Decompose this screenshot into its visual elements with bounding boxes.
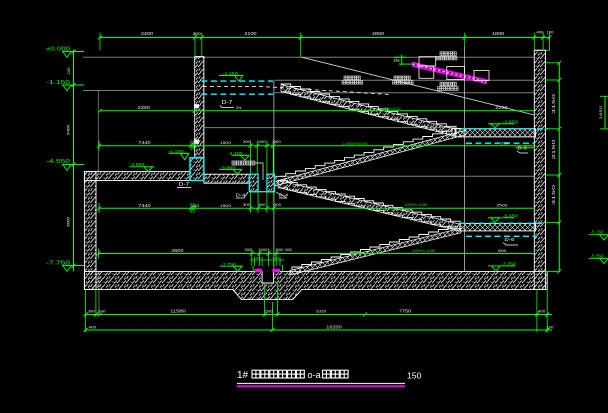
svg-text:300: 300	[276, 248, 283, 252]
svg-text:2300: 2300	[138, 105, 151, 110]
svg-text:2%: 2%	[394, 58, 400, 63]
svg-text:600: 600	[498, 248, 507, 253]
svg-text:7440: 7440	[138, 203, 151, 208]
svg-text:200: 200	[274, 256, 279, 260]
svg-text:D-7: D-7	[222, 100, 233, 106]
svg-text:3150: 3150	[551, 93, 556, 114]
svg-text:o-a: o-a	[308, 370, 322, 380]
svg-text:400: 400	[89, 325, 97, 329]
svg-text:2%: 2%	[236, 105, 242, 110]
svg-text:11580: 11580	[170, 309, 186, 314]
svg-text:2400: 2400	[141, 31, 154, 36]
svg-text:L=9000+5100: L=9000+5100	[343, 141, 368, 146]
svg-text:300: 300	[243, 140, 250, 144]
svg-text:200: 200	[501, 142, 509, 146]
svg-text:1500: 1500	[220, 140, 232, 145]
svg-text:300: 300	[274, 203, 281, 207]
svg-text:150: 150	[407, 370, 422, 380]
svg-text:600: 600	[258, 140, 265, 144]
svg-text:300: 300	[274, 140, 281, 144]
svg-text:3400: 3400	[66, 124, 71, 135]
svg-text:3150: 3150	[551, 138, 556, 159]
svg-text:D-4: D-4	[236, 193, 246, 198]
svg-text:1/2H+1=5.50: 1/2H+1=5.50	[412, 248, 436, 253]
svg-text:200: 200	[255, 256, 260, 260]
svg-text:D-4: D-4	[278, 193, 288, 198]
svg-text:240: 240	[98, 310, 106, 314]
svg-text:7750: 7750	[399, 309, 412, 314]
svg-text:D-6: D-6	[504, 237, 515, 243]
svg-text:-5.550: -5.550	[591, 253, 605, 258]
svg-text:-5.150: -5.150	[591, 230, 605, 235]
svg-text:1800: 1800	[492, 31, 505, 36]
svg-text:200: 200	[193, 31, 202, 36]
svg-text:600: 600	[259, 203, 266, 207]
svg-text:1650: 1650	[599, 106, 603, 119]
svg-text:D-5: D-5	[517, 146, 527, 151]
svg-text:360: 360	[285, 248, 292, 252]
svg-text:400: 400	[536, 31, 543, 35]
svg-text:4500: 4500	[171, 248, 184, 253]
svg-text:100: 100	[546, 325, 553, 329]
svg-text:7440: 7440	[138, 140, 151, 145]
svg-text:16200: 16200	[326, 324, 342, 329]
svg-text:1020: 1020	[316, 310, 327, 314]
svg-text:1500: 1500	[220, 203, 232, 208]
svg-text:1150: 1150	[67, 67, 71, 74]
svg-text:4950: 4950	[372, 31, 385, 36]
svg-text:300: 300	[243, 203, 250, 207]
svg-text:2500: 2500	[496, 202, 508, 207]
svg-text:600: 600	[265, 310, 273, 314]
svg-text:300: 300	[244, 248, 251, 252]
svg-text:2100: 2100	[244, 31, 257, 36]
svg-text:1/2H+1=5.50: 1/2H+1=5.50	[404, 202, 428, 207]
svg-text:390: 390	[87, 310, 95, 314]
svg-text:600: 600	[260, 248, 267, 252]
svg-text:1#: 1#	[237, 370, 249, 381]
svg-text:240: 240	[192, 141, 200, 145]
svg-text:L/RH=5.00: L/RH=5.00	[381, 106, 401, 111]
svg-text:400: 400	[538, 310, 545, 314]
svg-text:240: 240	[192, 204, 200, 208]
svg-text:3150: 3150	[551, 184, 556, 205]
svg-text:3600: 3600	[66, 216, 71, 227]
svg-text:100: 100	[546, 31, 553, 35]
svg-text:2250: 2250	[495, 105, 508, 110]
